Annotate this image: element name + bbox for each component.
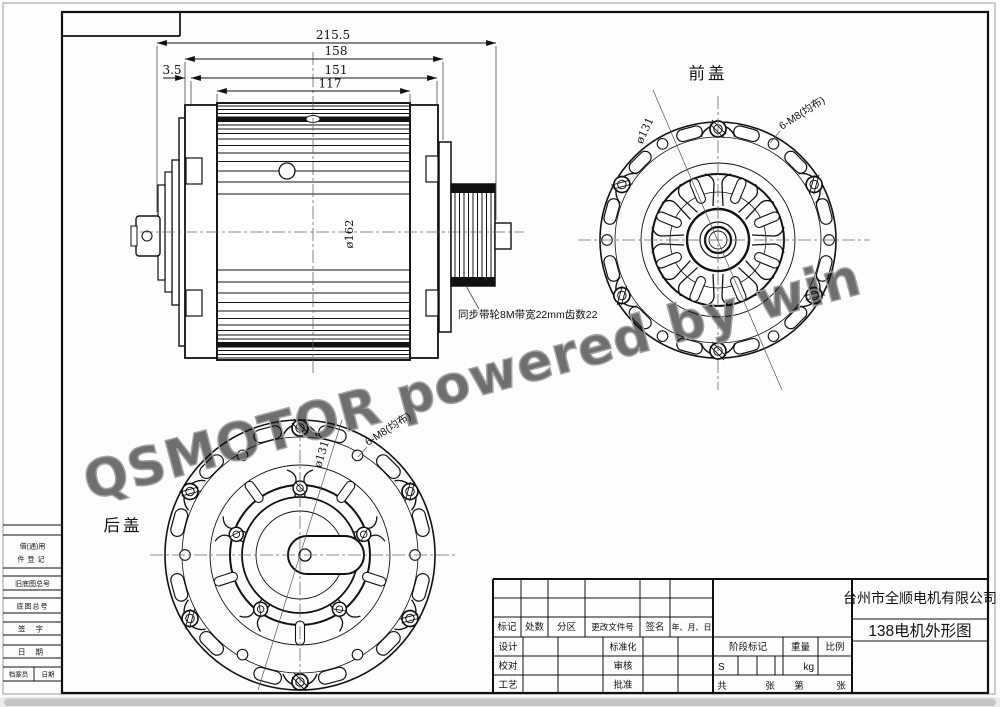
margin-date: 日 期	[18, 648, 47, 657]
shaft-stub	[495, 223, 511, 249]
sheets-total-suffix: 张	[765, 681, 775, 692]
dim-cap-span: 158	[325, 44, 348, 58]
margin-archive-date: 日期	[42, 671, 56, 679]
stage-mark-label: 阶段标记	[729, 641, 768, 653]
margin-drawing-no: 底图总号	[17, 602, 49, 611]
margin-borrow-1: 借(通)用	[20, 542, 46, 551]
rev-header-sign: 签名	[645, 621, 664, 633]
cap-boss	[186, 158, 202, 184]
weight-label: 重量	[791, 641, 811, 653]
rear-view-label: 后盖	[104, 516, 143, 535]
rear-end-cap	[185, 105, 217, 358]
front-end-cap	[410, 105, 438, 358]
rev-header-mark: 标记	[497, 621, 517, 633]
engineering-drawing: QSMOTOR powered by win 215.5 158 151	[0, 0, 1000, 707]
dim-offset: 3.5	[162, 63, 181, 77]
body-hole	[279, 163, 295, 179]
role-standardization: 标准化	[609, 641, 636, 652]
margin-borrow-2: 件登记	[18, 555, 48, 564]
pulley-note: 同步带轮8M带宽22mm齿数22	[458, 308, 598, 321]
margin-old-drawing-no: 旧底图总号	[15, 579, 50, 588]
weight-unit: kg	[803, 662, 814, 673]
sheet-prefix: 第	[794, 680, 804, 692]
stage-value: S	[718, 662, 725, 673]
rev-header-doc-no: 更改文件号	[591, 622, 634, 632]
role-approve: 批准	[613, 679, 633, 691]
cap-boss	[186, 290, 202, 316]
rev-header-zone: 分区	[557, 622, 577, 633]
role-check: 校对	[498, 660, 518, 672]
scrollbar-thumb[interactable]	[4, 699, 996, 707]
drawing-viewer: QSMOTOR powered by win 215.5 158 151	[0, 0, 1000, 707]
pulley-flange-disc	[439, 142, 451, 332]
dim-body-diameter: ø162	[342, 220, 356, 249]
fin-band	[217, 342, 410, 348]
motor-body	[217, 103, 410, 360]
role-design: 设计	[498, 641, 518, 653]
cap-boss	[426, 290, 438, 316]
drawing-title: 138电机外形图	[868, 622, 971, 640]
dim-overall: 215.5	[316, 28, 350, 42]
role-process: 工艺	[498, 680, 517, 691]
sheets-total-prefix: 共	[717, 681, 727, 692]
rev-header-date: 年、月、日	[672, 622, 712, 632]
dim-inner-span: 151	[325, 63, 348, 77]
scale-label: 比例	[825, 641, 844, 653]
sheet-suffix: 张	[836, 681, 846, 692]
dim-body-width: 117	[319, 77, 342, 91]
margin-signature: 签 字	[18, 624, 47, 634]
front-view-label: 前盖	[689, 64, 728, 83]
cap-boss	[426, 156, 438, 182]
company-name: 台州市全顺电机有限公司	[843, 590, 997, 606]
margin-archivist: 档案员	[9, 670, 29, 679]
rev-header-count: 处数	[525, 621, 545, 633]
role-audit: 审核	[613, 660, 633, 672]
